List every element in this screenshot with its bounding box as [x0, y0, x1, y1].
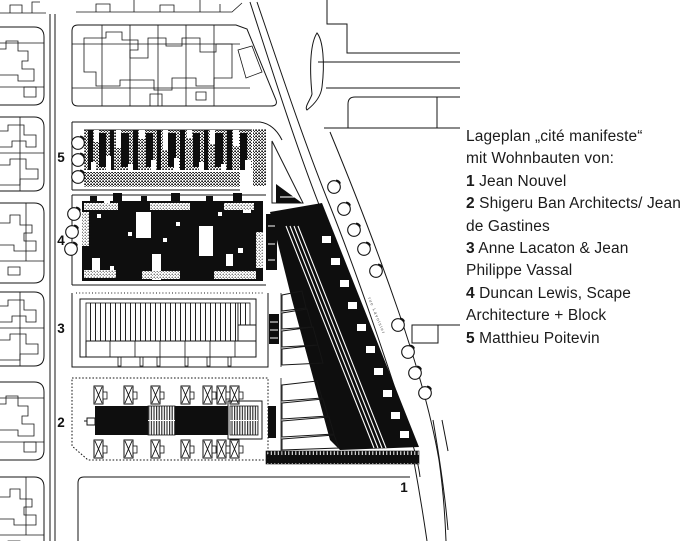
site-plan: rue Lavoisier 54321 [0, 0, 460, 541]
caption-line: 2 Shigeru Ban Architects/ Jean [466, 193, 699, 215]
building-3-lacaton-vassal [72, 293, 268, 367]
caption-line: de Gastines [466, 216, 699, 238]
caption-line: 1 Jean Nouvel [466, 171, 699, 193]
caption-line: mit Wohnbauten von: [466, 148, 699, 170]
site-plan-figure: rue Lavoisier 54321 Lageplan „cité manif… [0, 0, 700, 541]
caption-line: Lageplan „cité manifeste“ [466, 126, 699, 148]
caption: Lageplan „cité manifeste“mit Wohnbauten … [466, 126, 699, 350]
building-2-shigeru-ban [72, 378, 268, 460]
caption-line: 3 Anne Lacaton & Jean [466, 238, 699, 260]
context-blocks-left [0, 2, 46, 541]
caption-entry-number: 4 [466, 285, 475, 302]
caption-line: Architecture + Block [466, 305, 699, 327]
street-vertical [50, 14, 55, 541]
caption-entry-number: 1 [466, 173, 475, 190]
building-1-nouvel [266, 203, 419, 464]
block4-tabs [90, 193, 242, 202]
caption-entry-number: 5 [466, 330, 475, 347]
context-block-top [72, 0, 276, 106]
context-building-east [412, 325, 460, 343]
building-4-lewis [65, 193, 277, 285]
block-label-4: 4 [57, 233, 65, 248]
block-label-1: 1 [400, 480, 408, 495]
lot-strip-structures [268, 314, 279, 438]
block2-upper-units [94, 386, 243, 404]
caption-entry-number: 2 [466, 195, 475, 212]
caption-line: 5 Matthieu Poitevin [466, 328, 699, 350]
caption-entry-number: 3 [466, 240, 475, 257]
caption-line: 4 Duncan Lewis, Scape [466, 283, 699, 305]
block-label-3: 3 [57, 321, 65, 336]
block2-bar [84, 401, 262, 439]
building-5-poitevin [72, 122, 303, 203]
context-top-right [306, 0, 460, 128]
block-label-5: 5 [57, 150, 65, 165]
block2-lower-units [94, 440, 243, 458]
caption-line: Philippe Vassal [466, 260, 699, 282]
lot-empty-south [78, 462, 427, 541]
block-label-2: 2 [57, 415, 65, 430]
